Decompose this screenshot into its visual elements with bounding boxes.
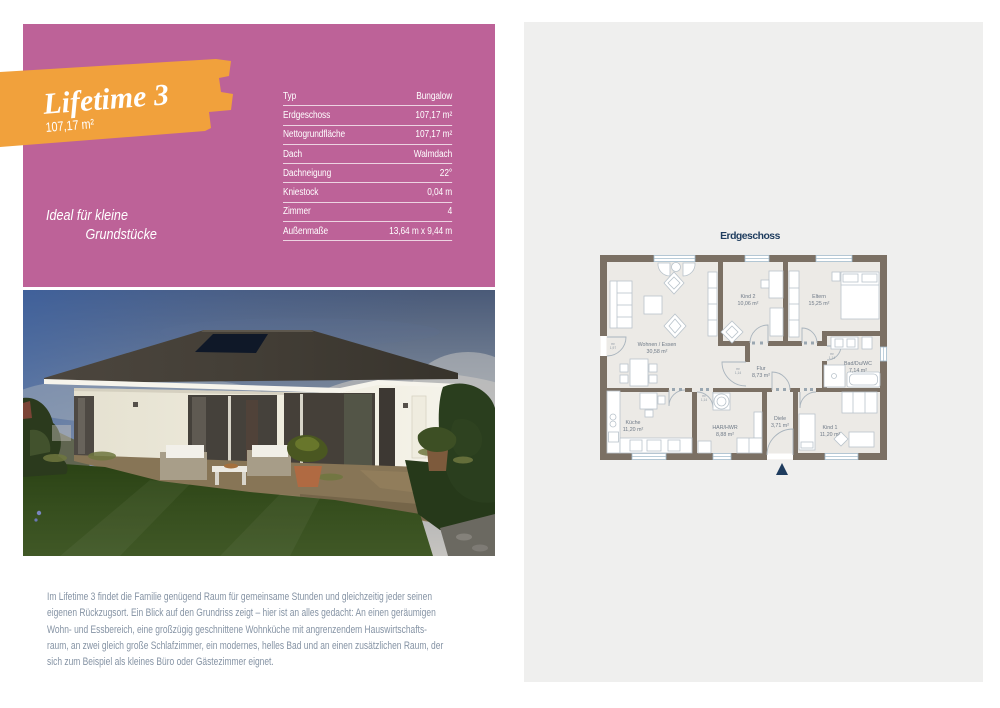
svg-text:Kind 1: Kind 1 bbox=[822, 425, 837, 431]
svg-text:1,14: 1,14 bbox=[701, 398, 707, 402]
svg-text:1,14: 1,14 bbox=[735, 371, 741, 375]
svg-text:3,71 m²: 3,71 m² bbox=[771, 423, 789, 429]
svg-text:11,20 m²: 11,20 m² bbox=[820, 432, 841, 438]
svg-text:Bad/Du/WC: Bad/Du/WC bbox=[844, 361, 872, 367]
svg-text:1,97: 1,97 bbox=[610, 346, 616, 350]
svg-text:Eltern: Eltern bbox=[812, 294, 826, 300]
svg-text:Küche: Küche bbox=[625, 420, 640, 426]
svg-text:Diele: Diele bbox=[774, 416, 786, 422]
svg-text:7,14 m²: 7,14 m² bbox=[849, 368, 867, 374]
svg-text:8,88 m²: 8,88 m² bbox=[716, 432, 734, 438]
svg-text:30,58 m²: 30,58 m² bbox=[647, 349, 668, 355]
svg-text:Kind 2: Kind 2 bbox=[740, 294, 755, 300]
svg-text:Wohnen / Essen: Wohnen / Essen bbox=[638, 342, 677, 348]
svg-text:Flur: Flur bbox=[756, 366, 765, 372]
svg-text:10,06 m²: 10,06 m² bbox=[738, 301, 759, 307]
svg-text:11,20 m²: 11,20 m² bbox=[623, 427, 644, 433]
svg-text:HAR/HWR: HAR/HWR bbox=[712, 425, 737, 431]
svg-text:1,14: 1,14 bbox=[829, 356, 835, 360]
svg-text:8,73 m²: 8,73 m² bbox=[752, 373, 770, 379]
svg-text:15,25 m²: 15,25 m² bbox=[809, 301, 830, 307]
